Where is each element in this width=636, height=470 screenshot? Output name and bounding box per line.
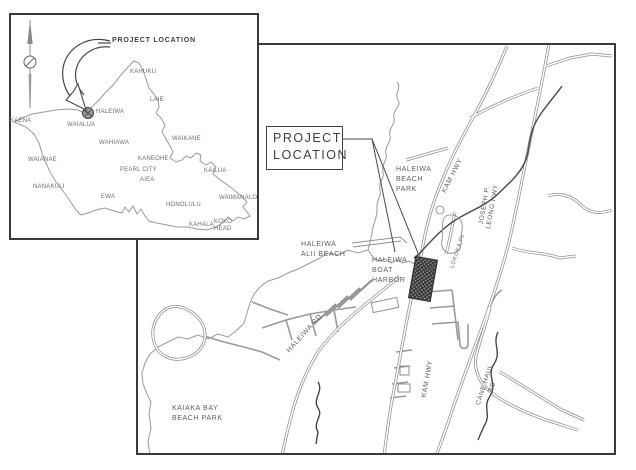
label-nanakuli: NANAKULI	[33, 184, 65, 191]
label-pearl-city: PEARL CITY	[120, 167, 157, 174]
label-kailua: KAILUA	[204, 168, 227, 175]
label-haleiwa-alii-beach: HALEIWA ALII BEACH	[301, 240, 346, 260]
label-wahiawa: WAHIAWA	[99, 140, 129, 147]
label-kaneohe: KANEOHE	[138, 156, 169, 163]
town-buildings	[398, 366, 410, 392]
breakwater	[352, 237, 407, 247]
label-waialua: WAIALUA	[67, 122, 95, 129]
label-kaiaka-bay-beach-park: KAIAKA BAY BEACH PARK	[172, 404, 223, 424]
label-kahala: KAHALA	[189, 222, 214, 229]
project-location-box: PROJECT LOCATION	[266, 126, 343, 170]
label-kaena: KAENA	[10, 118, 31, 125]
label-aiea: AIEA	[140, 177, 154, 184]
project-leader-lines	[343, 139, 420, 258]
label-waimanalo: WAIMANALO	[219, 195, 257, 202]
label-honolulu: HONOLULU	[166, 202, 201, 209]
label-koko-head: KOKO HEAD	[214, 219, 232, 233]
map-linework	[0, 0, 636, 470]
inset-project-location-label: PROJECT LOCATION	[112, 37, 196, 44]
label-haleiwa-boat-harbor: HALEIWA BOAT HARBOR	[372, 256, 407, 286]
label-kahuku: KAHUKU	[130, 69, 156, 76]
label-haleiwa: HALEIWA	[96, 109, 124, 116]
label-waianae: WAIANAE	[28, 157, 57, 164]
label-ewa: EWA	[101, 194, 115, 201]
harbor-building	[371, 297, 399, 312]
location-map-figure: PROJECT LOCATION PROJECT LOCATION HALEIW…	[0, 0, 636, 470]
streams	[316, 86, 562, 444]
label-laie: LAIE	[150, 97, 164, 104]
inset-frame	[10, 14, 258, 239]
label-haleiwa-beach-park: HALEIWA BEACH PARK	[396, 165, 431, 195]
label-waikane: WAIKANE	[172, 136, 201, 143]
